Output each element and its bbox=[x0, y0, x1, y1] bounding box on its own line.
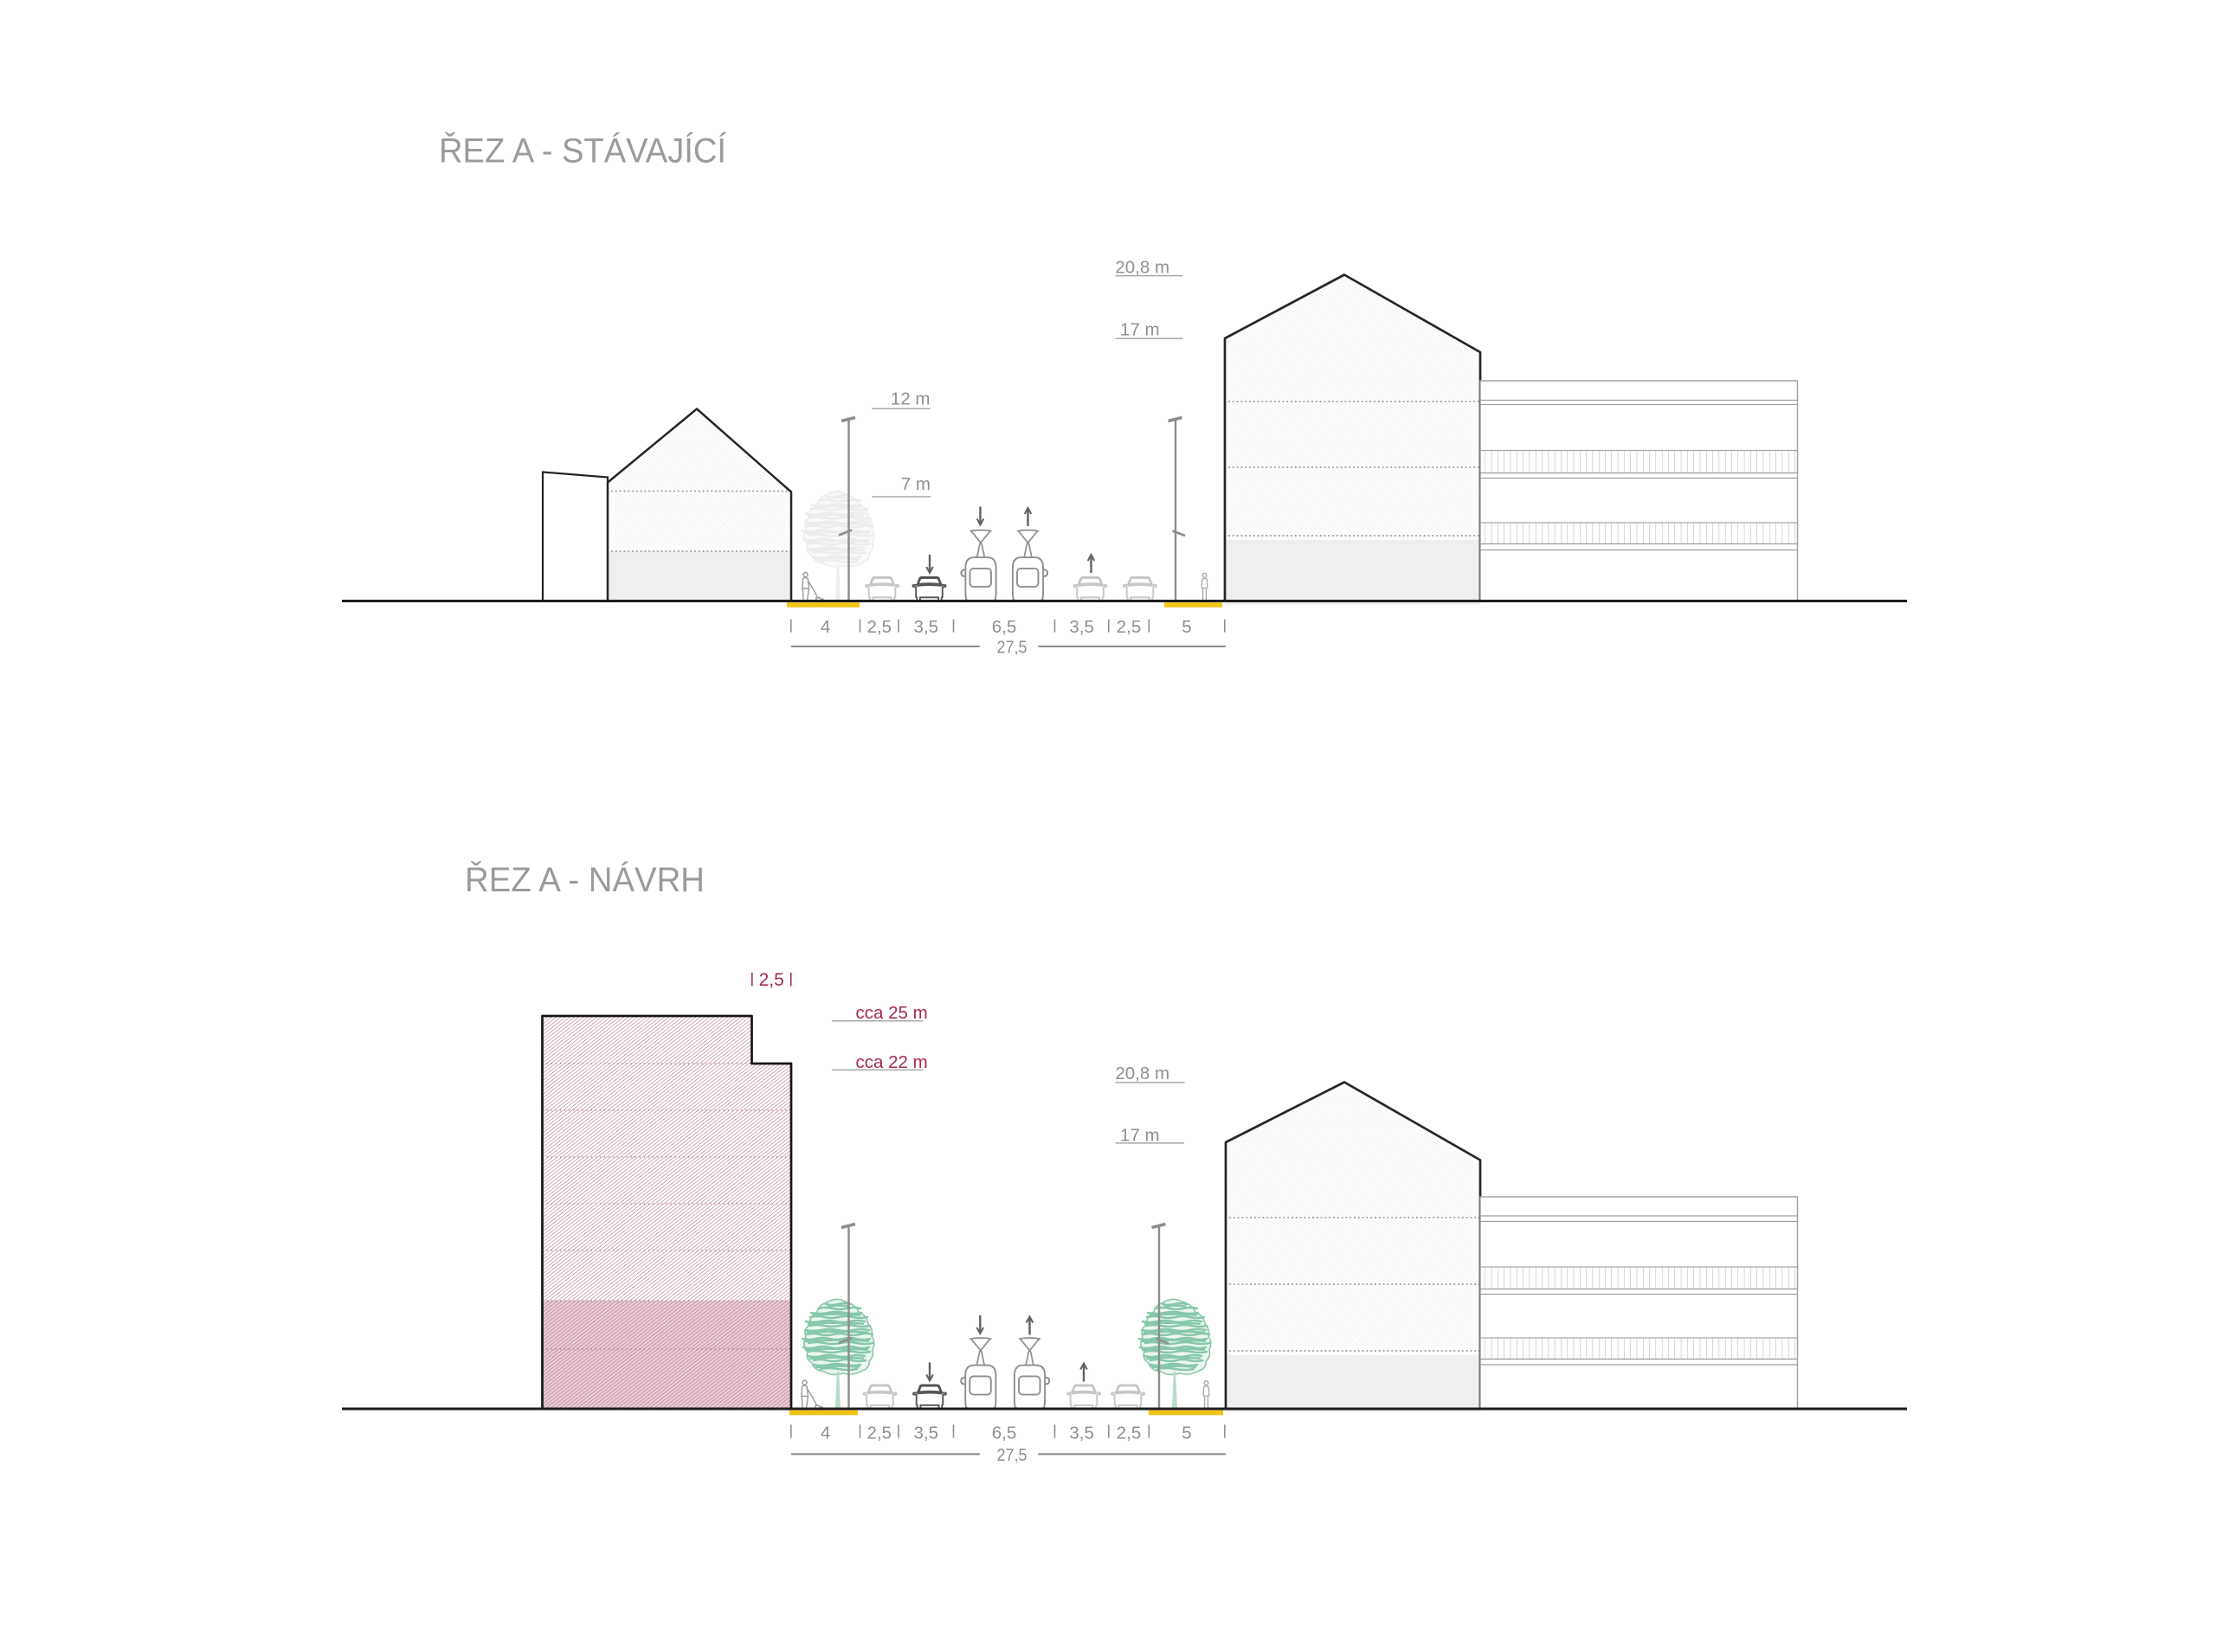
svg-text:20,8 m: 20,8 m bbox=[1115, 1064, 1169, 1083]
svg-text:ŘEZ A - STÁVAJÍCÍ: ŘEZ A - STÁVAJÍCÍ bbox=[439, 132, 727, 170]
svg-text:3,5: 3,5 bbox=[1069, 617, 1094, 637]
svg-text:5: 5 bbox=[1182, 617, 1191, 637]
svg-text:2,5: 2,5 bbox=[1117, 617, 1142, 637]
svg-text:cca 22 m: cca 22 m bbox=[856, 1052, 928, 1072]
svg-text:7 m: 7 m bbox=[901, 474, 931, 494]
svg-text:4: 4 bbox=[821, 1424, 830, 1443]
svg-text:6,5: 6,5 bbox=[992, 1424, 1017, 1443]
svg-text:27,5: 27,5 bbox=[997, 1445, 1027, 1465]
svg-text:3,5: 3,5 bbox=[914, 1424, 939, 1443]
svg-text:4: 4 bbox=[821, 617, 830, 637]
svg-text:17 m: 17 m bbox=[1120, 1126, 1160, 1146]
svg-text:12 m: 12 m bbox=[891, 389, 931, 409]
svg-text:ŘEZ A - NÁVRH: ŘEZ A - NÁVRH bbox=[465, 860, 705, 899]
svg-text:cca 25 m: cca 25 m bbox=[856, 1003, 928, 1023]
svg-text:6,5: 6,5 bbox=[992, 617, 1017, 637]
svg-text:27,5: 27,5 bbox=[997, 638, 1027, 658]
svg-text:20,8 m: 20,8 m bbox=[1115, 258, 1169, 278]
svg-text:2,5: 2,5 bbox=[867, 1424, 892, 1443]
svg-text:2,5: 2,5 bbox=[1117, 1424, 1142, 1443]
svg-text:17 m: 17 m bbox=[1120, 320, 1160, 340]
svg-text:2,5: 2,5 bbox=[867, 617, 892, 637]
svg-text:2,5: 2,5 bbox=[759, 970, 784, 990]
svg-text:5: 5 bbox=[1182, 1424, 1191, 1443]
svg-text:3,5: 3,5 bbox=[914, 617, 939, 637]
svg-text:3,5: 3,5 bbox=[1069, 1424, 1094, 1443]
